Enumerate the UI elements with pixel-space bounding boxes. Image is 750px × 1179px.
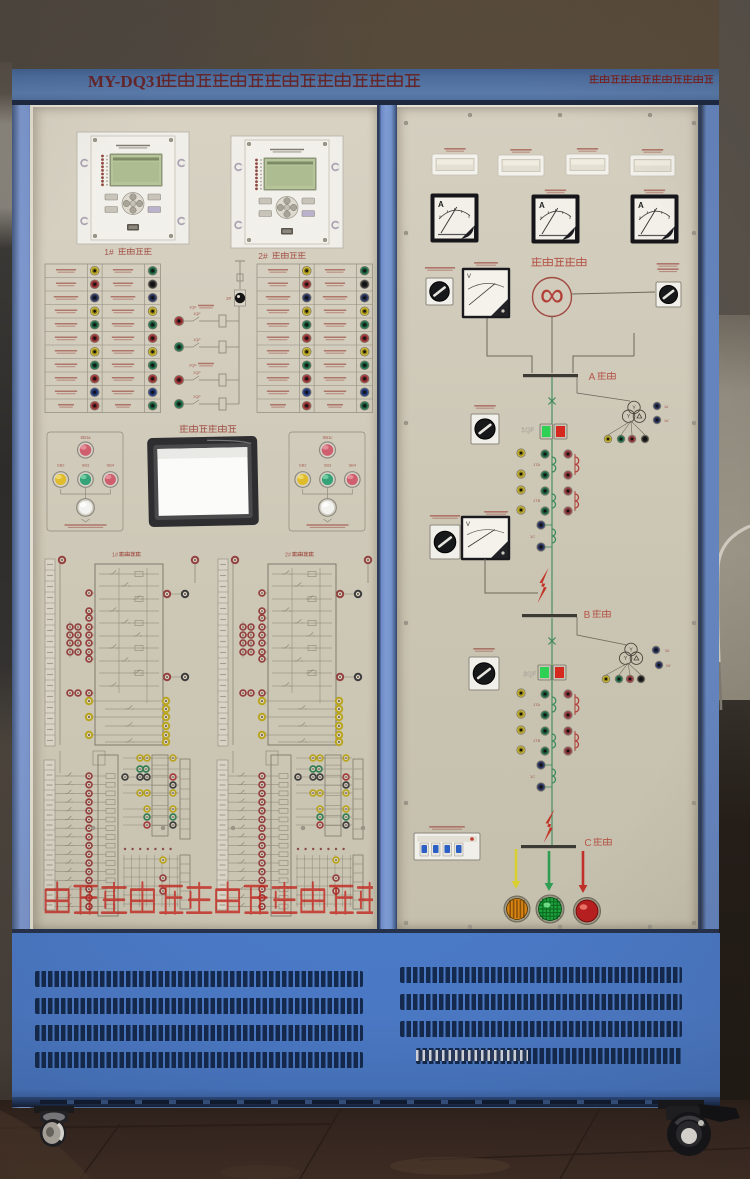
svg-text:1TB: 1TB bbox=[533, 498, 541, 503]
svg-text:C: C bbox=[584, 838, 591, 849]
svg-text:A: A bbox=[589, 372, 596, 383]
svg-text:1QF: 1QF bbox=[193, 338, 201, 342]
svg-text:2#: 2# bbox=[258, 251, 268, 261]
svg-text:1QF: 1QF bbox=[193, 312, 201, 316]
svg-text:1C: 1C bbox=[530, 534, 535, 539]
svg-text:B: B bbox=[584, 610, 591, 621]
svg-text:2#': 2#' bbox=[666, 664, 671, 668]
svg-text:SB2: SB2 bbox=[57, 463, 65, 468]
svg-text:1TA: 1TA bbox=[533, 462, 540, 467]
svg-text:SB1a: SB1a bbox=[80, 435, 91, 440]
svg-text:1TB: 1TB bbox=[533, 738, 541, 743]
svg-text:1#': 1#' bbox=[664, 419, 669, 423]
svg-text:2QF: 2QF bbox=[189, 363, 197, 368]
svg-text:1QF: 1QF bbox=[521, 427, 534, 434]
svg-text:Y: Y bbox=[627, 414, 631, 420]
svg-text:2QF: 2QF bbox=[523, 671, 536, 678]
svg-text:SB3: SB3 bbox=[82, 463, 90, 468]
svg-text:2QF: 2QF bbox=[193, 395, 201, 399]
svg-text:2#: 2# bbox=[665, 649, 670, 653]
svg-text:1QF: 1QF bbox=[189, 305, 197, 310]
svg-text:1#: 1# bbox=[104, 247, 114, 257]
svg-text:1C: 1C bbox=[530, 774, 535, 779]
svg-text:Y: Y bbox=[629, 647, 633, 653]
svg-text:SB4: SB4 bbox=[349, 463, 357, 468]
svg-text:A: A bbox=[638, 201, 644, 210]
svg-text:SB2: SB2 bbox=[299, 463, 307, 468]
svg-text:A: A bbox=[539, 201, 545, 210]
svg-text:A: A bbox=[438, 200, 444, 209]
svg-text:V: V bbox=[466, 522, 470, 528]
svg-text:V: V bbox=[467, 274, 471, 280]
svg-text:MY-DQ31: MY-DQ31 bbox=[88, 72, 163, 91]
svg-text:SB3: SB3 bbox=[324, 463, 332, 468]
svg-text:2#: 2# bbox=[226, 296, 231, 301]
svg-text:Y: Y bbox=[632, 405, 636, 411]
svg-text:∞: ∞ bbox=[540, 276, 564, 314]
svg-text:2#: 2# bbox=[285, 553, 292, 559]
svg-text:SB4: SB4 bbox=[107, 463, 115, 468]
svg-text:Y: Y bbox=[624, 656, 628, 662]
svg-text:1#: 1# bbox=[112, 553, 119, 559]
svg-text:SB1c: SB1c bbox=[322, 435, 332, 440]
svg-text:1#: 1# bbox=[664, 405, 669, 409]
svg-text:2QF: 2QF bbox=[193, 371, 201, 375]
svg-text:1TA: 1TA bbox=[533, 702, 540, 707]
